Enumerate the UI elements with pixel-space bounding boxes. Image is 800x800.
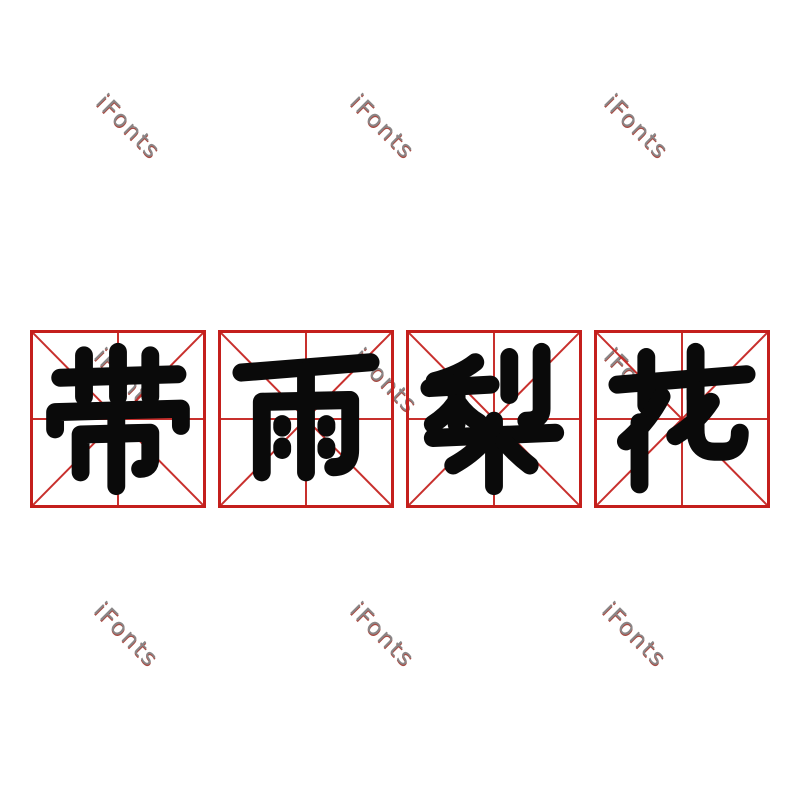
grid-box-hua: 花 <box>594 330 770 508</box>
hanzi-hua-glyph-icon <box>597 333 767 505</box>
hanzi-dai-glyph-icon <box>33 333 203 505</box>
hanzi-li-glyph-icon <box>409 333 579 505</box>
hanzi-yu-glyph-icon <box>221 333 391 505</box>
watermark-ifonts: iFonts <box>344 597 419 672</box>
watermark-ifonts: iFonts <box>90 89 165 164</box>
watermark-ifonts: iFonts <box>344 89 419 164</box>
watermark-ifonts: iFonts <box>88 597 163 672</box>
watermark-ifonts: iFonts <box>598 89 673 164</box>
grid-box-dai: 带 <box>30 330 206 508</box>
grid-box-li: 梨 <box>406 330 582 508</box>
watermark-ifonts: iFonts <box>596 597 671 672</box>
grid-box-yu: 雨 <box>218 330 394 508</box>
font-preview-canvas: iFonts iFonts iFonts iFonts iFonts iFont… <box>0 0 800 800</box>
